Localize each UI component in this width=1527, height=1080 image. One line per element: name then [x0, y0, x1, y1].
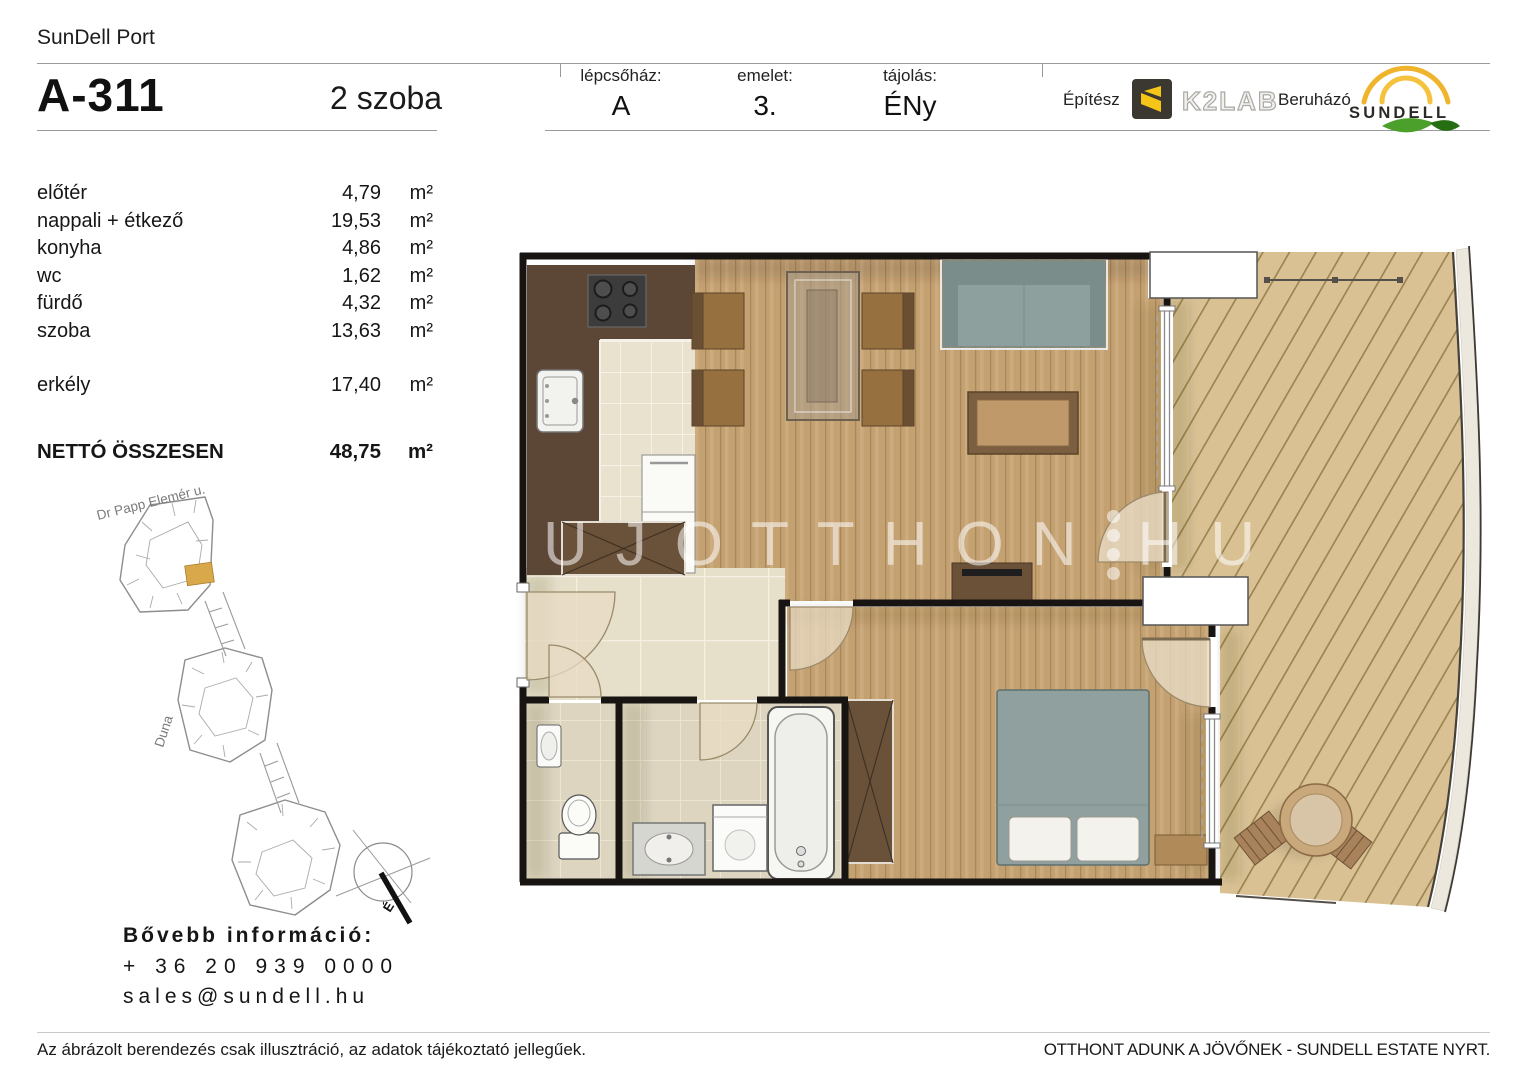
area-table: előtér4,79m² nappali + étkező19,53m² kon… — [37, 182, 433, 467]
field-orientation: tájolás: ÉNy — [845, 66, 975, 122]
header-divider-top — [37, 63, 1490, 64]
table-row: erkély17,40m² — [37, 374, 433, 402]
map-building-b — [178, 648, 272, 762]
unit-room-count: 2 szoba — [330, 80, 442, 117]
coffee-table — [968, 392, 1078, 454]
map-building-a — [120, 497, 213, 612]
watermark-dots-icon — [1107, 510, 1120, 580]
toilet-icon — [559, 795, 599, 859]
room-area: 1,62 — [291, 265, 381, 288]
orientation-value: ÉNy — [845, 90, 975, 122]
kitchen-sink-icon — [537, 370, 583, 432]
k2lab-arrow-icon — [1137, 84, 1167, 114]
room-area: 17,40 — [291, 374, 381, 397]
room-name: erkély — [37, 374, 291, 397]
wall-block — [1150, 252, 1257, 298]
watermark-text-1: UJOTTHON — [543, 509, 1105, 580]
architect-name: K2LAB — [1182, 86, 1279, 117]
banner-divider-left — [37, 130, 437, 131]
contact-heading: Bővebb információ: — [123, 924, 399, 948]
washing-machine-icon — [713, 805, 767, 871]
table-row: nappali + étkező19,53m² — [37, 210, 433, 238]
footer-slogan: OTTHONT ADUNK A JÖVŐNEK - SUNDELL ESTATE… — [1044, 1040, 1490, 1060]
room-unit: m² — [381, 210, 433, 233]
terrace-table — [1280, 784, 1352, 856]
room-unit: m² — [381, 265, 433, 288]
wc-handbasin-icon — [537, 725, 561, 767]
room-unit: m² — [381, 292, 433, 315]
datasheet-page: SunDell Port A-311 2 szoba lépcsőház: A … — [0, 0, 1527, 1080]
map-river-label: Duna — [152, 713, 176, 749]
bedroom-wardrobe — [847, 700, 893, 863]
room-unit: m² — [381, 237, 433, 260]
total-value: 48,75 — [291, 440, 381, 464]
room-unit: m² — [381, 182, 433, 205]
room-name: fürdő — [37, 292, 291, 315]
developer-label: Beruházó — [1278, 90, 1351, 110]
staircase-label: lépcsőház: — [556, 66, 686, 86]
contact-email[interactable]: sales@sundell.hu — [123, 985, 399, 1009]
header-tick — [1042, 63, 1043, 77]
map-unit-highlight — [185, 562, 215, 586]
table-row: előtér4,79m² — [37, 182, 433, 210]
sundell-logo: SUNDELL — [1348, 60, 1466, 141]
orientation-label: tájolás: — [845, 66, 975, 86]
floor-value: 3. — [700, 90, 830, 122]
sofa — [941, 259, 1107, 349]
floor-label: emelet: — [700, 66, 830, 86]
washbasin-icon — [633, 823, 705, 875]
floor-plan: UJOTTHON HU — [515, 245, 1515, 945]
compass-icon: É — [336, 830, 430, 923]
room-unit: m² — [381, 320, 433, 343]
project-title: SunDell Port — [37, 26, 155, 50]
contact-block: Bővebb információ: + 36 20 939 0000 sale… — [123, 924, 399, 1009]
nightstand — [1155, 835, 1207, 865]
total-unit: m² — [381, 440, 433, 464]
room-name: wc — [37, 265, 291, 288]
total-label: NETTÓ ÖSSZESEN — [37, 440, 291, 464]
staircase-value: A — [556, 90, 686, 122]
site-map: Dr Papp Elemér u. Duna É — [75, 475, 445, 950]
room-name: előtér — [37, 182, 291, 205]
footer-disclaimer: Az ábrázolt berendezés csak illusztráció… — [37, 1040, 586, 1060]
field-staircase: lépcsőház: A — [556, 66, 686, 122]
room-unit: m² — [381, 374, 433, 397]
table-row: szoba13,63m² — [37, 320, 433, 348]
dining-table — [787, 272, 859, 420]
room-area: 4,79 — [291, 182, 381, 205]
sun-arc-inner-icon — [1382, 78, 1430, 102]
bed — [997, 690, 1149, 865]
room-name: szoba — [37, 320, 291, 343]
room-area: 13,63 — [291, 320, 381, 343]
wall-block — [1143, 577, 1248, 625]
watermark: UJOTTHON HU — [543, 509, 1283, 580]
contact-phone[interactable]: + 36 20 939 0000 — [123, 955, 399, 979]
architect-label: Építész — [1063, 90, 1120, 110]
room-area: 19,53 — [291, 210, 381, 233]
sun-arc-outer-icon — [1364, 68, 1448, 102]
field-floor: emelet: 3. — [700, 66, 830, 122]
total-row: NETTÓ ÖSSZESEN48,75m² — [37, 440, 433, 468]
table-row: fürdő4,32m² — [37, 292, 433, 320]
leaf-dark-icon — [1430, 120, 1460, 131]
map-building-c — [232, 800, 340, 915]
bathtub-icon — [768, 707, 834, 879]
room-name: konyha — [37, 237, 291, 260]
k2lab-logo-icon — [1132, 79, 1172, 119]
room-name: nappali + étkező — [37, 210, 291, 233]
table-row: konyha4,86m² — [37, 237, 433, 265]
unit-code: A-311 — [37, 68, 165, 122]
table-row: wc1,62m² — [37, 265, 433, 293]
footer-divider — [37, 1032, 1490, 1033]
watermark-text-2: HU — [1138, 509, 1284, 580]
room-area: 4,86 — [291, 237, 381, 260]
room-area: 4,32 — [291, 292, 381, 315]
